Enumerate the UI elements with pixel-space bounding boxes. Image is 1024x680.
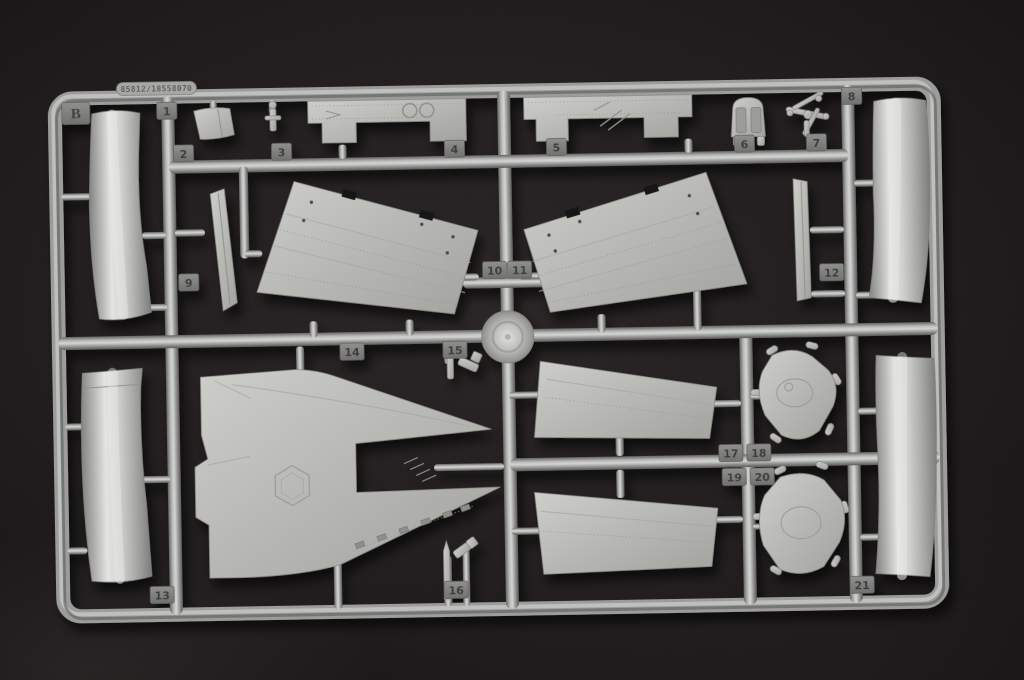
part-tab-7: 7 [806, 134, 826, 151]
part-tab-2: 2 [173, 145, 193, 162]
intake-duct-part-bottom-right [872, 354, 939, 577]
part-tab-21: 21 [850, 576, 874, 593]
part-tab-9: 9 [179, 274, 199, 291]
part-tab-8: 8 [841, 87, 861, 104]
injection-gate-boss [481, 310, 534, 363]
svg-text:14: 14 [344, 346, 360, 359]
svg-text:12: 12 [824, 267, 840, 280]
sprue-letter-tab: B [62, 102, 90, 124]
svg-text:20: 20 [754, 471, 770, 484]
part-tab-11: 11 [507, 261, 531, 278]
svg-text:17: 17 [723, 447, 739, 460]
svg-text:1: 1 [163, 105, 171, 118]
svg-text:9: 9 [185, 277, 193, 290]
part-tab-13: 13 [150, 586, 174, 603]
part-tab-16: 16 [444, 581, 468, 598]
part-tab-6: 6 [734, 135, 754, 152]
svg-text:19: 19 [726, 471, 742, 484]
part-tab-17: 17 [719, 444, 743, 461]
svg-text:4: 4 [451, 143, 459, 156]
svg-text:18: 18 [751, 447, 767, 460]
intake-duct-part-top-right [866, 97, 932, 303]
part-tab-5: 5 [546, 138, 566, 155]
model-kit-sprue-photo: 85812/18558070 B 12345678910111213141516… [0, 0, 1024, 680]
mold-stamp: 85812/18558070 [116, 81, 196, 95]
mold-stamp-text: 85812/18558070 [120, 84, 192, 94]
scoop-part [194, 107, 235, 139]
svg-text:6: 6 [741, 138, 749, 151]
svg-text:5: 5 [553, 141, 561, 154]
svg-text:21: 21 [854, 579, 870, 592]
part-tab-14: 14 [340, 343, 364, 360]
svg-text:13: 13 [154, 589, 170, 602]
svg-text:8: 8 [848, 90, 856, 103]
part-tab-12: 12 [820, 263, 844, 280]
part-tab-15: 15 [443, 341, 467, 358]
svg-text:10: 10 [487, 264, 503, 277]
part-tab-20: 20 [750, 468, 774, 485]
part-tab-19: 19 [722, 468, 746, 485]
part-tab-3: 3 [271, 143, 291, 160]
part-tab-10: 10 [482, 261, 506, 278]
part-tab-4: 4 [444, 140, 464, 157]
svg-text:3: 3 [278, 146, 286, 159]
svg-text:16: 16 [448, 584, 464, 597]
part-tab-18: 18 [747, 444, 771, 461]
svg-text:7: 7 [813, 137, 821, 150]
svg-text:11: 11 [512, 264, 528, 277]
svg-text:15: 15 [447, 344, 463, 357]
part-tab-1: 1 [157, 102, 177, 119]
sprue-letter-text: B [71, 106, 81, 122]
svg-text:2: 2 [180, 148, 188, 161]
